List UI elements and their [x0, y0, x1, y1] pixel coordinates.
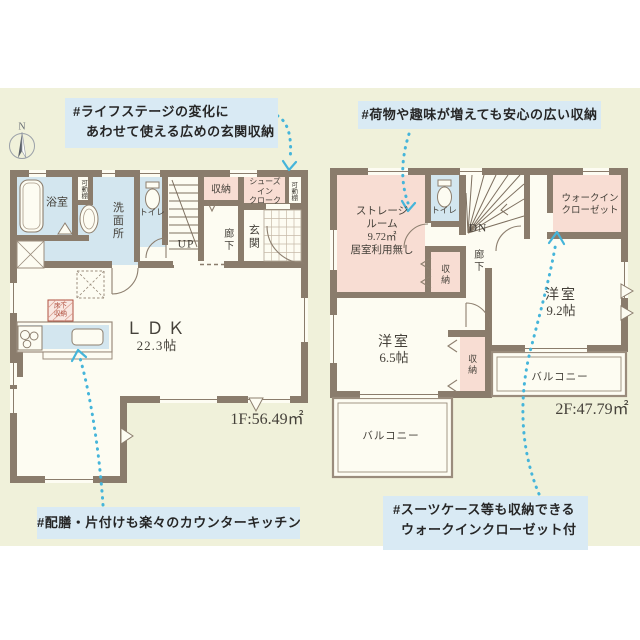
label-movable-shelf-right: 可動棚 [289, 181, 296, 201]
entrance-porch-grid [264, 210, 301, 261]
label-ldk: ＬＤＫ 22.3帖 [126, 319, 189, 353]
floorplan-page: N 浴室 可動棚 洗面所 トイレ UP 収納 シューズ イン クローク 可動棚 … [0, 0, 640, 640]
label-room-92: 洋室 9.2帖 [545, 288, 577, 318]
bathtub-icon [20, 180, 43, 232]
label-room-65: 洋室 6.5帖 [378, 335, 410, 365]
washer-space-icon [17, 241, 44, 268]
label-closet-lower: 収納 [467, 354, 477, 376]
label-balcony-left: バルコニー [362, 431, 419, 443]
label-stairs-down: DN [469, 222, 488, 235]
label-area-2f: 2F:47.79㎡ [555, 401, 628, 419]
callout-walk-in-closet: #スーツケース等も収納できる ウォークインクローゼット付 [383, 496, 588, 550]
label-stairs-up: UP [178, 238, 195, 251]
label-floor-storage: 床下 収納 [54, 303, 67, 318]
label-washroom: 洗面所 [111, 202, 124, 241]
callout-entrance-storage: #ライフステージの変化に あわせて使える広めの玄関収納 [65, 98, 278, 148]
label-closet-1f: 収納 [211, 184, 231, 196]
understairs-opening [173, 261, 200, 265]
toilet-icon-2f [438, 180, 452, 207]
label-shoes-closet: シューズ イン クローク [249, 177, 281, 206]
callout-wide-storage: #荷物や趣味が増えても安心の広い収納 [358, 101, 601, 129]
label-walk-in-closet: ウォークイン クローゼット [561, 193, 618, 217]
callout-counter-kitchen: #配膳・片付けも楽々のカウンターキッチン [37, 507, 300, 539]
label-hallway-2f: 廊下 [471, 249, 483, 273]
label-toilet-1f: トイレ [139, 208, 165, 218]
compass-north-label: N [18, 121, 25, 133]
label-entrance: 玄関 [247, 224, 260, 250]
label-toilet-2f: トイレ [431, 206, 457, 216]
label-movable-shelf-left: 可動棚 [79, 179, 86, 199]
label-hallway-1f: 廊下 [221, 228, 233, 252]
label-area-1f: 1F:56.49㎡ [230, 411, 303, 429]
sink-icon [80, 205, 98, 233]
label-storage-room: ストレージ ルーム 9.72㎡ 居室利用無し [351, 205, 414, 257]
toilet-icon-1f [146, 182, 160, 209]
label-balcony-right: バルコニー [531, 372, 588, 384]
refrigerator-space-icon [77, 271, 104, 298]
label-closet-upper: 収納 [440, 264, 450, 286]
compass-icon [10, 132, 35, 159]
vent-mark-bottom [249, 398, 263, 411]
label-bath: 浴室 [46, 197, 68, 210]
